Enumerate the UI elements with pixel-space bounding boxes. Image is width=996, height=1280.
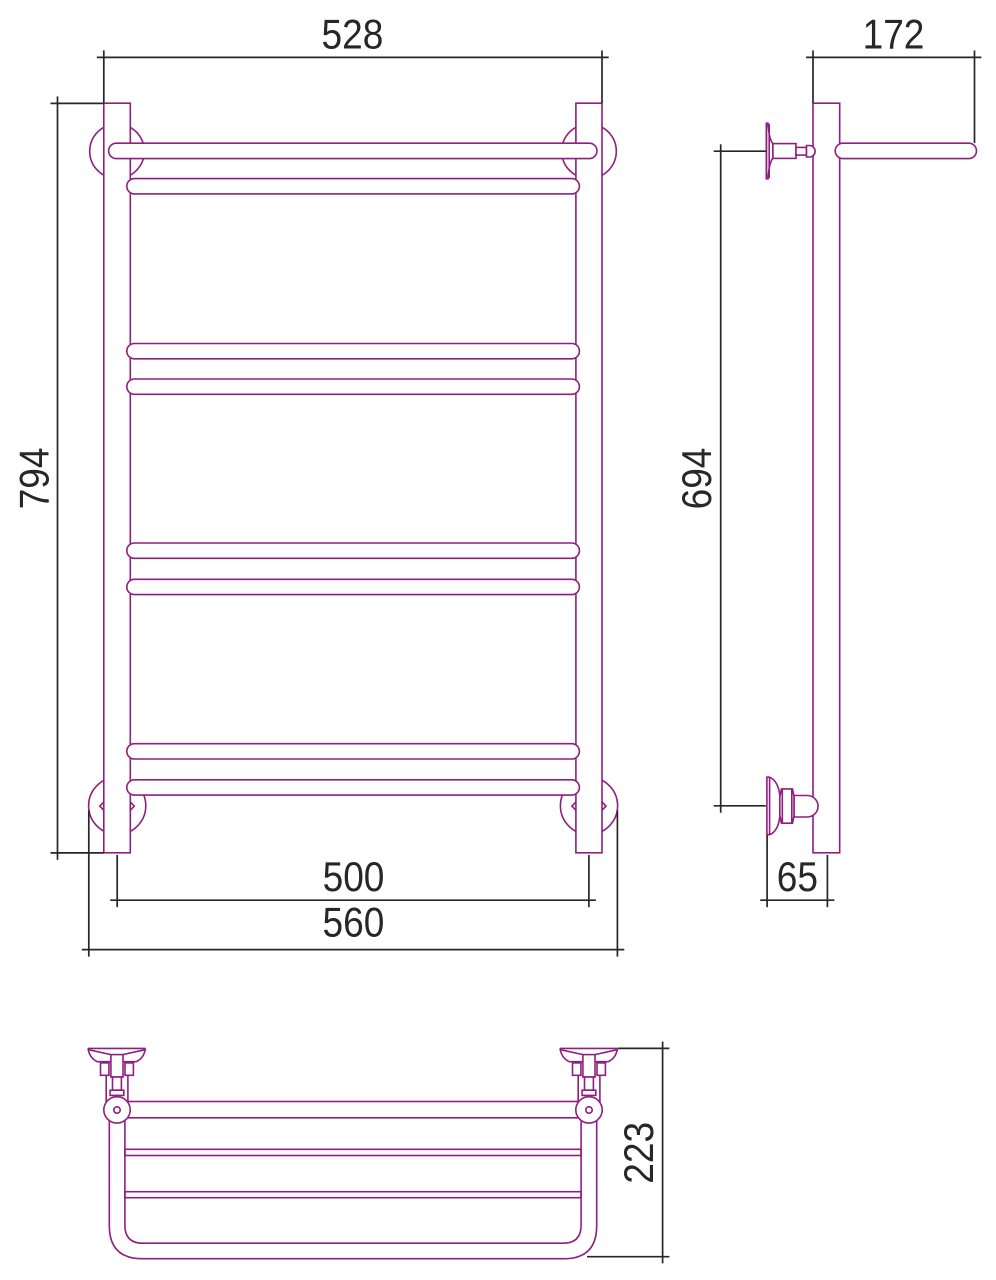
svg-text:223: 223 (616, 1122, 662, 1184)
svg-text:528: 528 (321, 12, 383, 58)
svg-text:694: 694 (674, 448, 720, 510)
svg-text:172: 172 (863, 12, 925, 58)
svg-text:794: 794 (11, 447, 57, 509)
svg-text:500: 500 (323, 854, 385, 900)
svg-text:560: 560 (322, 899, 384, 945)
svg-text:65: 65 (777, 854, 818, 900)
